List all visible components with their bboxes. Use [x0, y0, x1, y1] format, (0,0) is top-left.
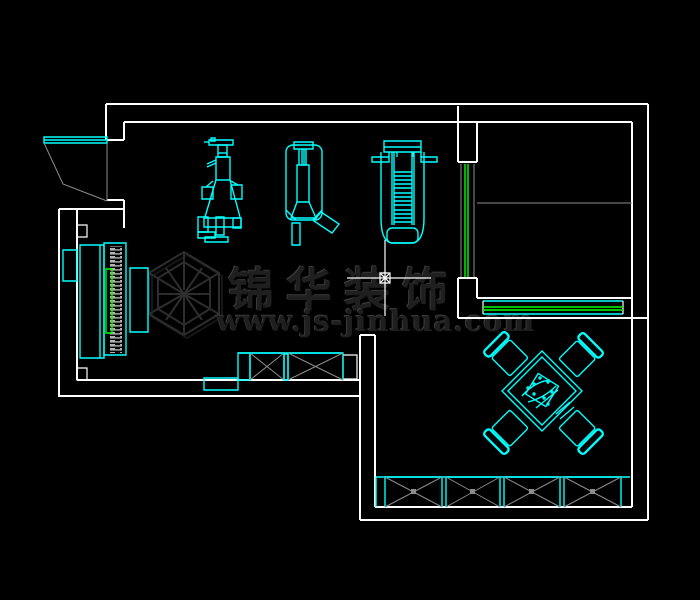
exercise-bike — [286, 142, 339, 245]
dining-chair-sw — [483, 408, 530, 455]
dining-table — [502, 351, 582, 431]
bedroom-window — [483, 301, 623, 314]
bay-window — [44, 137, 107, 201]
wall-column — [77, 225, 87, 237]
cad-canvas[interactable]: 锦华装饰 www.js-jinhua.com — [0, 0, 700, 600]
piano-side-unit — [63, 250, 77, 281]
wardrobe-row — [376, 477, 630, 507]
piano — [63, 243, 148, 358]
partition-window — [461, 164, 474, 277]
wall-column — [77, 368, 87, 380]
cabinet-end-panel — [238, 353, 250, 380]
wall-pier — [343, 355, 357, 379]
fitness-machine-1 — [198, 138, 242, 242]
crosshair-cursor — [347, 240, 431, 316]
treadmill — [372, 141, 437, 243]
cabinet-row-left-room — [238, 353, 343, 380]
floorplan-drawing — [0, 0, 700, 600]
piano-bench — [130, 268, 148, 332]
dining-chair-ne — [557, 332, 604, 379]
